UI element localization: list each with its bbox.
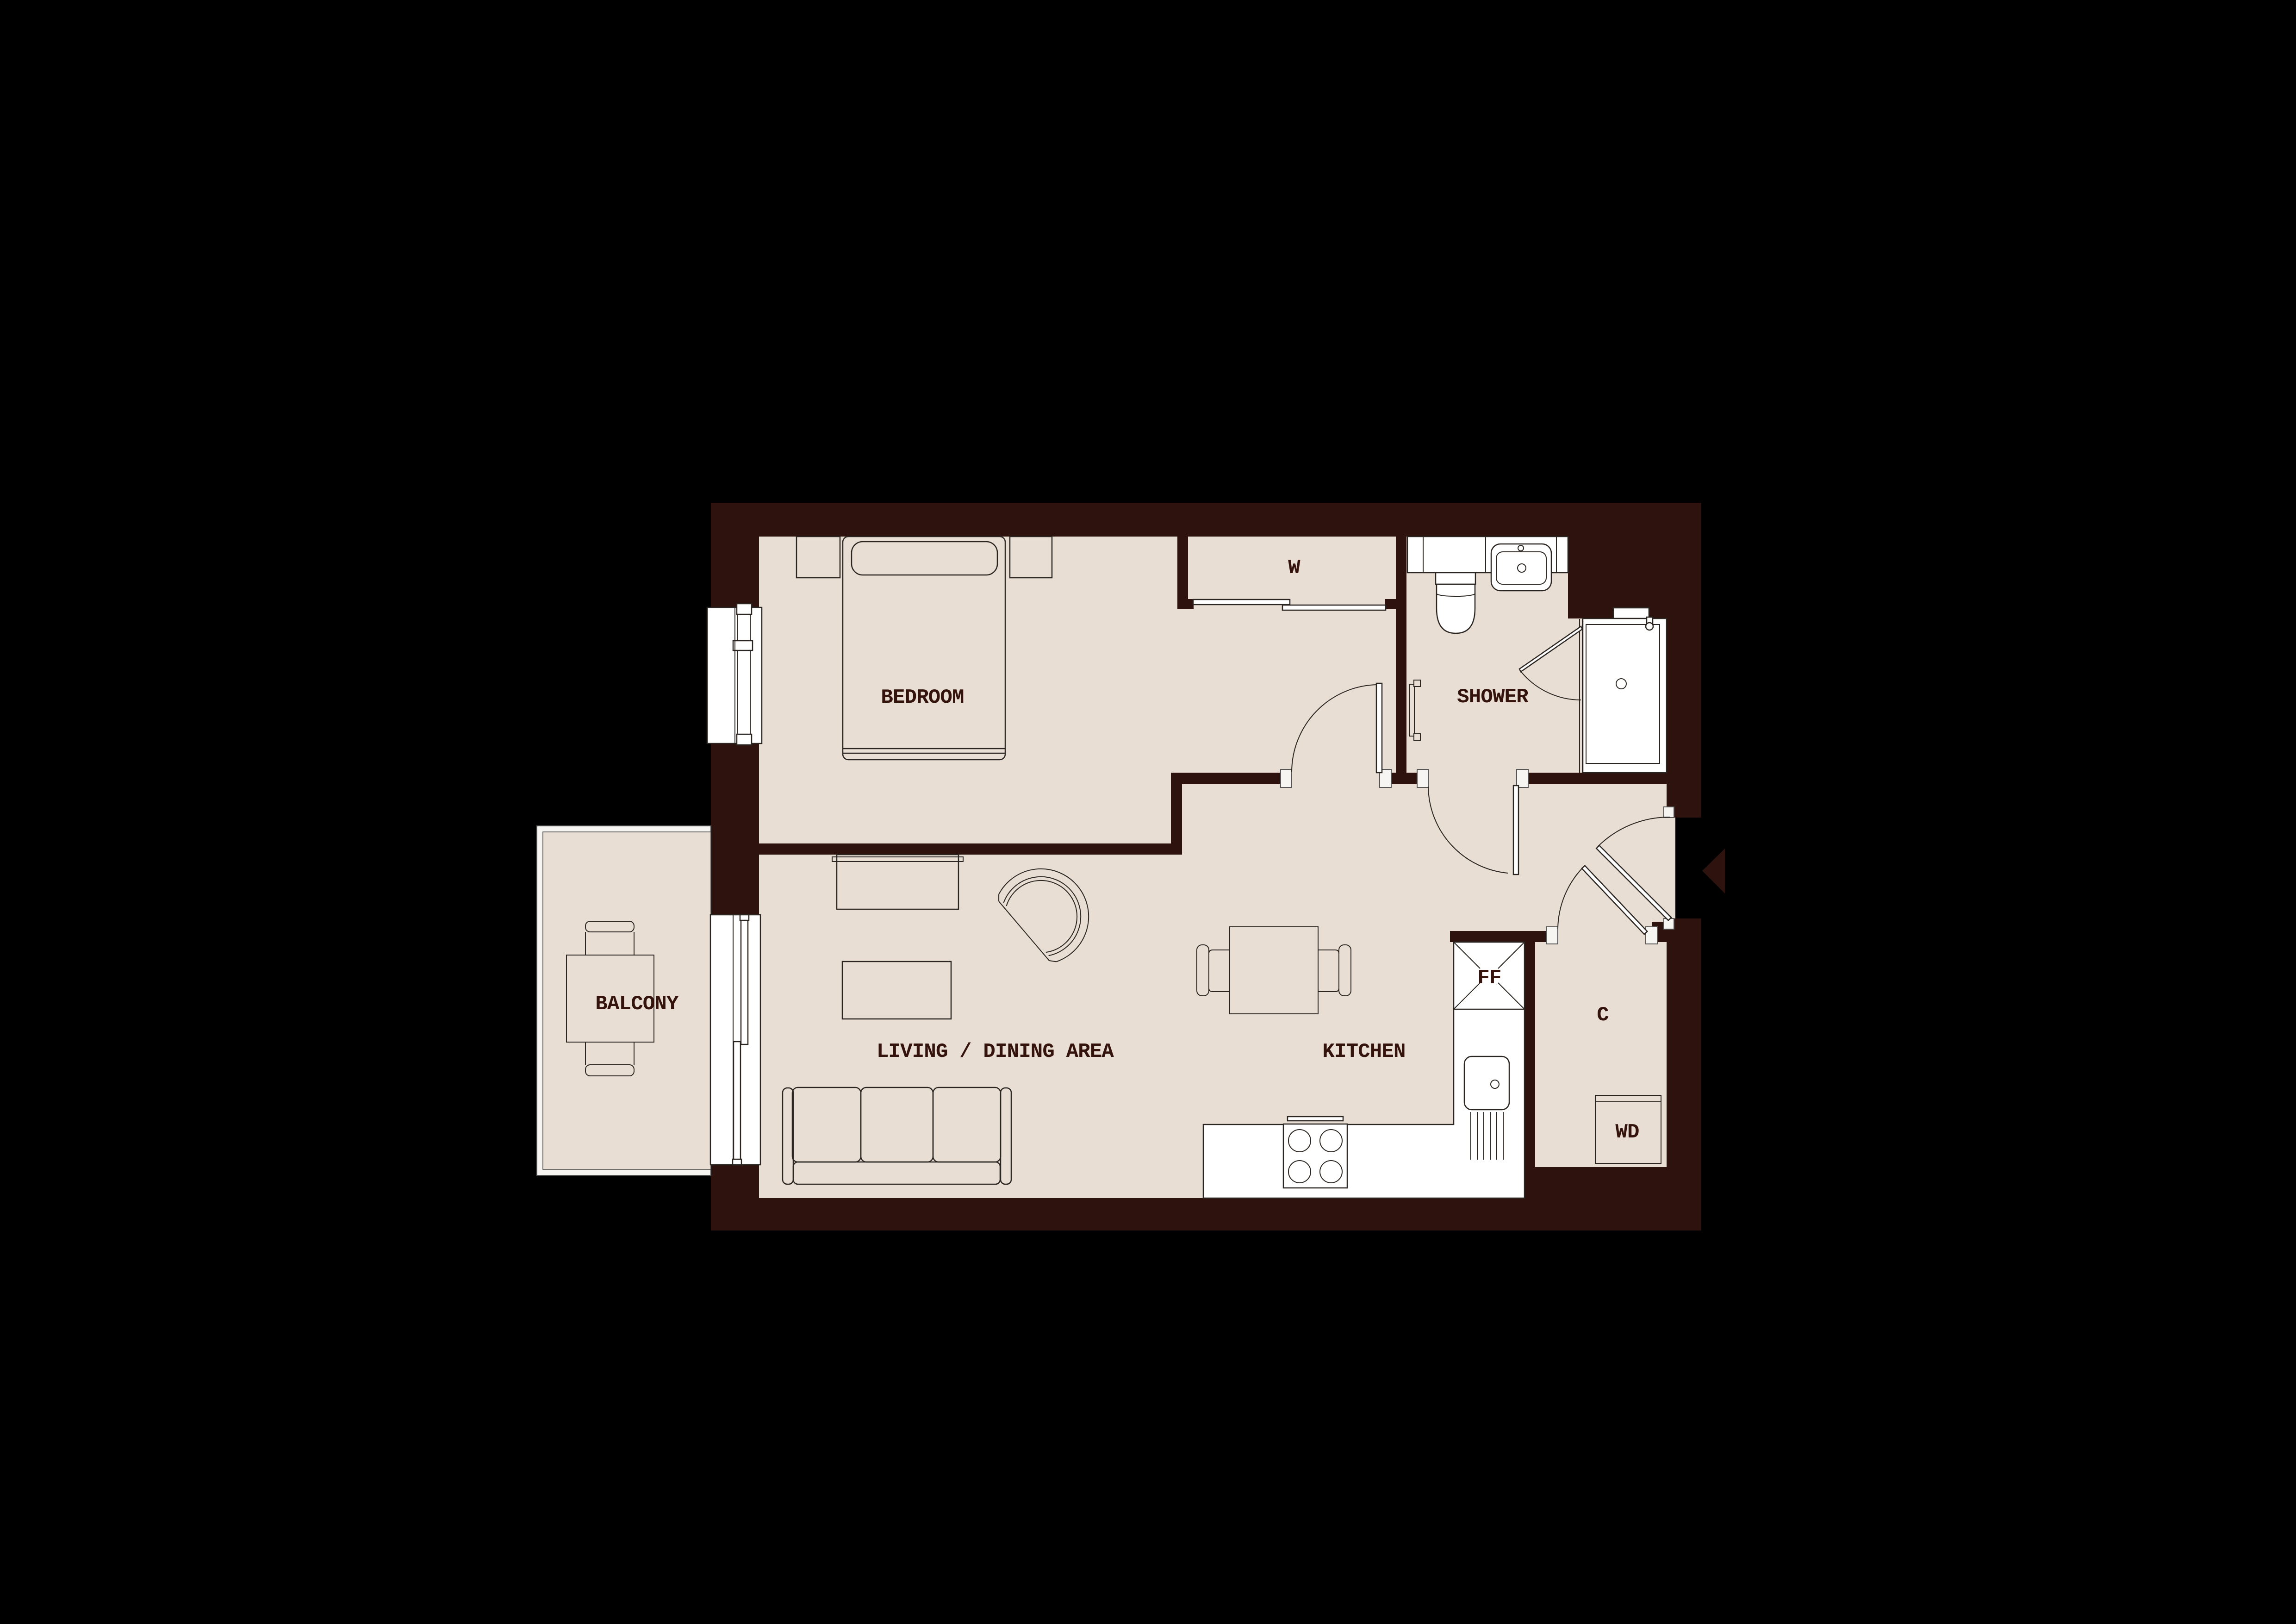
- svg-text:LIVING / DINING AREA: LIVING / DINING AREA: [877, 1040, 1114, 1063]
- svg-text:KITCHEN: KITCHEN: [1322, 1040, 1405, 1063]
- svg-text:C: C: [1597, 1004, 1609, 1027]
- svg-text:BALCONY: BALCONY: [595, 993, 679, 1016]
- svg-text:FF: FF: [1477, 967, 1501, 990]
- svg-text:SHOWER: SHOWER: [1457, 686, 1529, 709]
- svg-text:BEDROOM: BEDROOM: [881, 686, 964, 709]
- svg-text:WD: WD: [1615, 1121, 1639, 1144]
- svg-text:W: W: [1288, 556, 1300, 580]
